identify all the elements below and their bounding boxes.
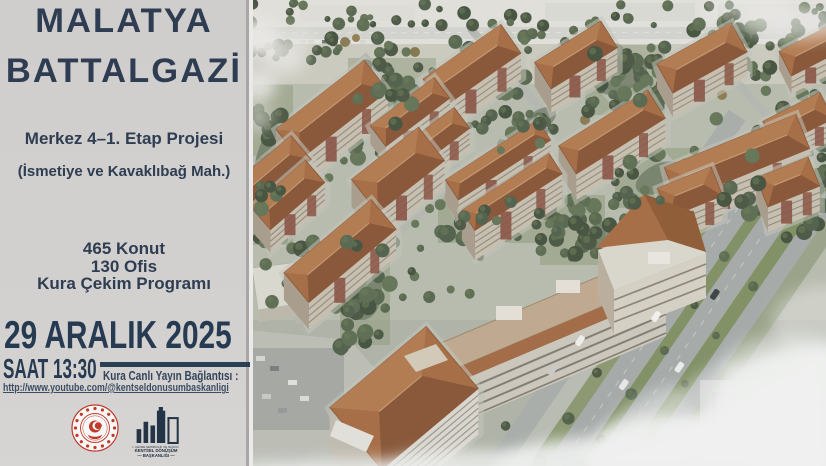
svg-text:— BAŞKANLIĞI —: — BAŞKANLIĞI — [137, 453, 175, 458]
